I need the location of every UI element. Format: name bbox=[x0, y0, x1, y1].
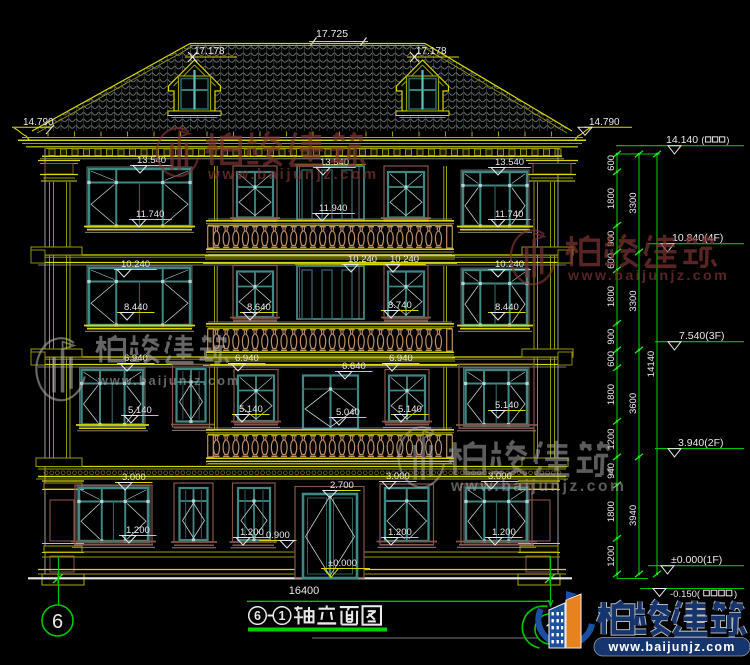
svg-text:): ) bbox=[734, 589, 737, 600]
svg-text:www.baijunjz.com: www.baijunjz.com bbox=[567, 268, 729, 284]
svg-text:±0.000(1F): ±0.000(1F) bbox=[671, 554, 722, 566]
svg-text:0.900: 0.900 bbox=[266, 530, 290, 541]
svg-text:5.140: 5.140 bbox=[398, 404, 422, 415]
svg-text:8.740: 8.740 bbox=[388, 300, 412, 311]
svg-text:10.840(4F): 10.840(4F) bbox=[672, 232, 723, 244]
svg-text:3940: 3940 bbox=[628, 505, 639, 526]
svg-text:): ) bbox=[726, 135, 729, 145]
svg-text:7.540(3F): 7.540(3F) bbox=[679, 330, 725, 342]
svg-text:(: ( bbox=[701, 135, 704, 145]
svg-text:11.940: 11.940 bbox=[319, 203, 347, 214]
svg-text:6.640: 6.640 bbox=[342, 361, 366, 372]
svg-text:5.140: 5.140 bbox=[239, 404, 263, 415]
svg-text:13.540: 13.540 bbox=[137, 155, 166, 166]
svg-text:1.200: 1.200 bbox=[388, 527, 412, 538]
svg-text:17.178: 17.178 bbox=[416, 46, 447, 57]
svg-text:www.baijunjz.com: www.baijunjz.com bbox=[450, 478, 626, 495]
svg-text:1800: 1800 bbox=[606, 188, 617, 209]
svg-text:www.baijunjz.com: www.baijunjz.com bbox=[97, 374, 240, 388]
svg-text:3300: 3300 bbox=[628, 290, 639, 311]
svg-text:5.140: 5.140 bbox=[128, 405, 152, 416]
svg-text:1.200: 1.200 bbox=[126, 525, 150, 536]
svg-text:900: 900 bbox=[606, 329, 617, 345]
svg-text:17.725: 17.725 bbox=[316, 28, 348, 40]
svg-text:1.200: 1.200 bbox=[240, 527, 264, 538]
svg-text:600: 600 bbox=[606, 155, 617, 171]
svg-text:±0.000: ±0.000 bbox=[328, 558, 357, 569]
svg-text:5.140: 5.140 bbox=[495, 400, 519, 411]
svg-text:3.940(2F): 3.940(2F) bbox=[678, 437, 724, 449]
svg-text:6: 6 bbox=[52, 611, 63, 633]
svg-text:8.440: 8.440 bbox=[124, 302, 148, 313]
svg-text:14.790: 14.790 bbox=[589, 117, 620, 128]
svg-text:6: 6 bbox=[254, 609, 261, 623]
svg-text:1.200: 1.200 bbox=[492, 527, 516, 538]
svg-text:1800: 1800 bbox=[606, 384, 617, 405]
svg-text:10.240: 10.240 bbox=[348, 254, 377, 265]
svg-text:www.baijunjz.com: www.baijunjz.com bbox=[607, 640, 735, 654]
svg-text:13.540: 13.540 bbox=[495, 157, 524, 168]
svg-text:8.440: 8.440 bbox=[495, 302, 519, 313]
svg-text:www.baijunjz.com: www.baijunjz.com bbox=[207, 166, 379, 183]
svg-text:1: 1 bbox=[279, 609, 286, 623]
svg-text:17.178: 17.178 bbox=[194, 46, 225, 57]
svg-text:11.740: 11.740 bbox=[136, 209, 164, 220]
svg-text:14140: 14140 bbox=[646, 351, 657, 377]
svg-text:6.940: 6.940 bbox=[235, 353, 259, 364]
svg-text:10.240: 10.240 bbox=[495, 259, 524, 270]
svg-text:3600: 3600 bbox=[628, 393, 639, 414]
svg-text:2.700: 2.700 bbox=[330, 480, 354, 491]
svg-text:6.940: 6.940 bbox=[389, 353, 413, 364]
svg-text:1800: 1800 bbox=[606, 501, 617, 522]
svg-text:5.040: 5.040 bbox=[336, 407, 360, 418]
svg-text:14.140: 14.140 bbox=[666, 134, 698, 146]
svg-text:10.240: 10.240 bbox=[121, 259, 150, 270]
svg-text:16400: 16400 bbox=[289, 585, 320, 597]
svg-text:11.740: 11.740 bbox=[495, 209, 523, 220]
svg-text:1200: 1200 bbox=[606, 546, 617, 567]
svg-text:-0.150(: -0.150( bbox=[670, 589, 701, 600]
svg-text:3.000: 3.000 bbox=[122, 472, 146, 483]
svg-text:3300: 3300 bbox=[628, 192, 639, 213]
svg-text:10.240: 10.240 bbox=[390, 254, 419, 265]
svg-text:1800: 1800 bbox=[606, 286, 617, 307]
svg-text:14.790: 14.790 bbox=[23, 117, 54, 128]
svg-text:600: 600 bbox=[606, 351, 617, 367]
svg-text:8.640: 8.640 bbox=[247, 302, 271, 313]
